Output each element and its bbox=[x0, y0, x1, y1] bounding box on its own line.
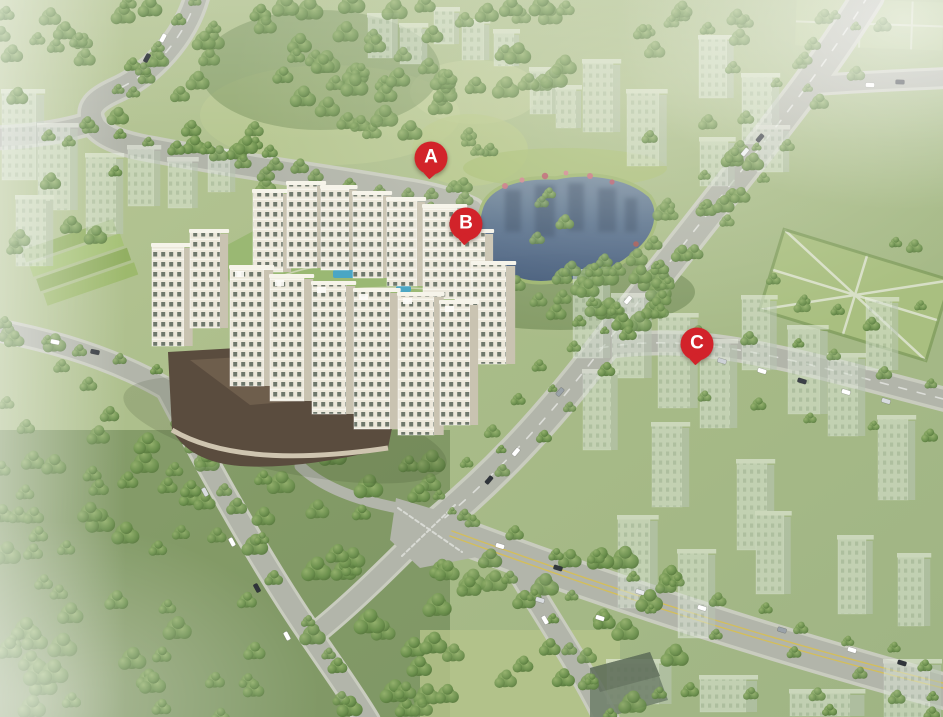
map-marker-b[interactable]: B bbox=[450, 208, 483, 241]
aerial-render bbox=[0, 0, 943, 717]
map-marker-a-label: A bbox=[424, 148, 438, 167]
map-marker-b-label: B bbox=[459, 214, 473, 233]
map-marker-a[interactable]: A bbox=[415, 142, 448, 175]
map-marker-c-label: C bbox=[690, 334, 704, 353]
map-marker-c[interactable]: C bbox=[681, 328, 714, 361]
haze-overlay bbox=[0, 0, 943, 717]
masterplan-aerial-image: A B C bbox=[0, 0, 943, 717]
